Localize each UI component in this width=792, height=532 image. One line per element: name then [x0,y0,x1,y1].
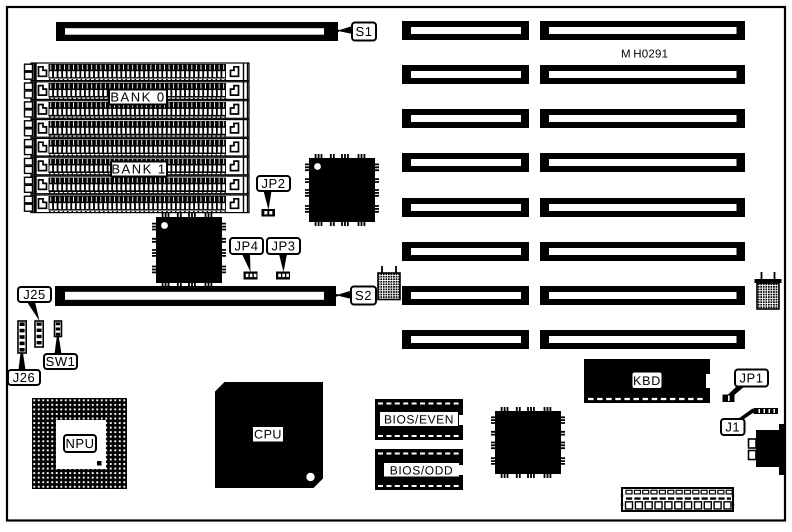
svg-text:S1: S1 [356,24,373,39]
svg-text:J25: J25 [23,287,45,302]
svg-text:M H0291: M H0291 [621,49,668,61]
svg-text:S2: S2 [355,288,372,303]
svg-text:BANK 0: BANK 0 [110,90,165,105]
svg-text:SW1: SW1 [46,354,76,369]
svg-text:CPU: CPU [254,428,282,442]
svg-text:BIOS/ODD: BIOS/ODD [390,464,453,478]
svg-text:NPU: NPU [66,436,95,451]
svg-text:BIOS/EVEN: BIOS/EVEN [384,413,454,427]
svg-text:KBD: KBD [633,374,661,388]
svg-text:BANK 1: BANK 1 [111,162,166,177]
svg-text:JP4: JP4 [235,239,259,254]
svg-text:JP1: JP1 [740,371,764,386]
svg-text:J26: J26 [13,370,35,385]
svg-text:JP3: JP3 [272,239,296,254]
svg-text:J1: J1 [725,420,740,435]
svg-text:JP2: JP2 [262,176,286,191]
